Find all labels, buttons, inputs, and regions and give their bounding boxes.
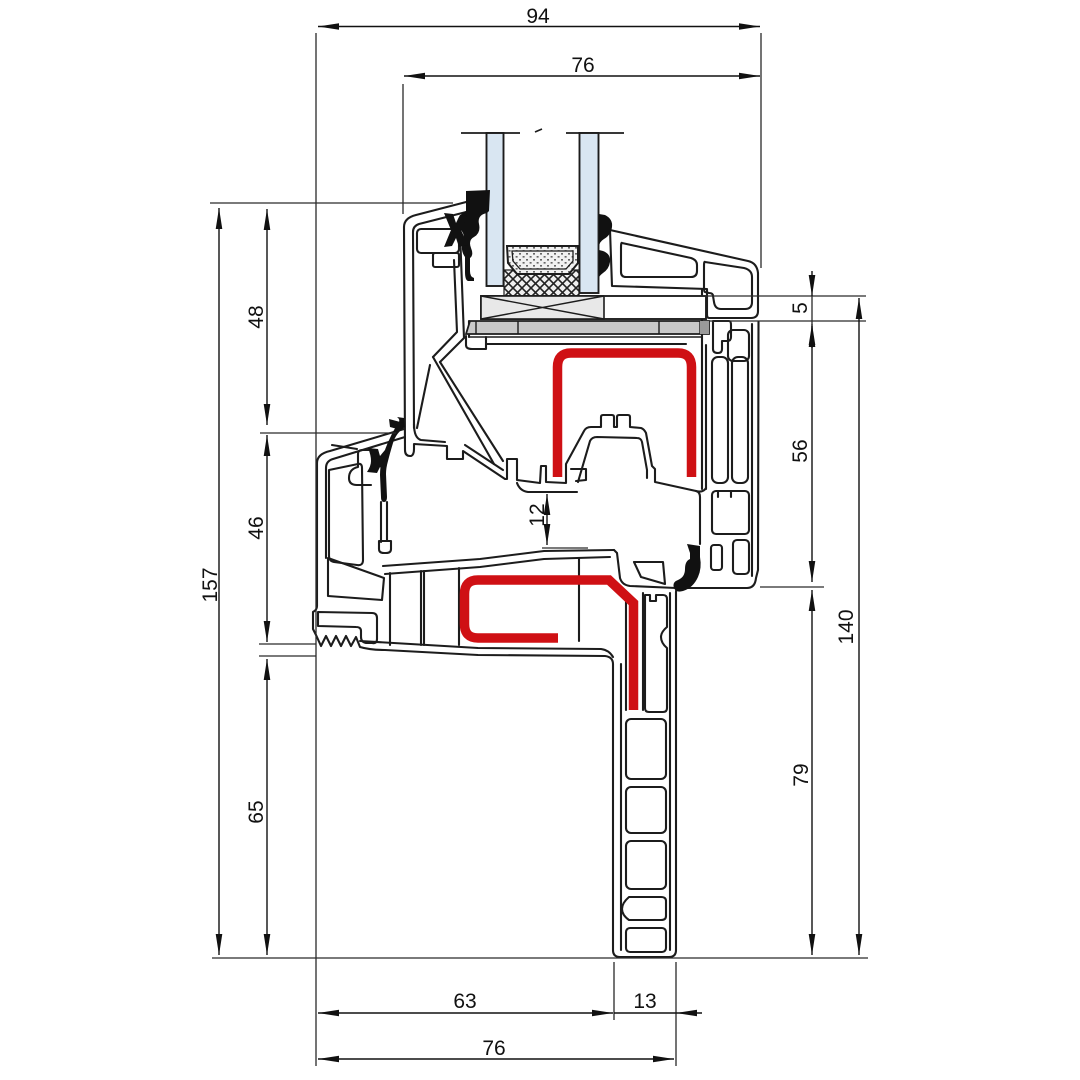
svg-text:94: 94 bbox=[526, 5, 550, 28]
svg-text:65: 65 bbox=[245, 800, 268, 823]
svg-text:63: 63 bbox=[453, 990, 476, 1013]
svg-text:13: 13 bbox=[633, 990, 656, 1013]
svg-text:157: 157 bbox=[199, 567, 222, 602]
svg-text:46: 46 bbox=[245, 516, 268, 539]
svg-text:12: 12 bbox=[526, 503, 549, 526]
svg-text:79: 79 bbox=[790, 763, 813, 786]
svg-text:5: 5 bbox=[789, 302, 812, 314]
svg-text:76: 76 bbox=[571, 54, 594, 77]
svg-text:56: 56 bbox=[789, 439, 812, 462]
svg-text:48: 48 bbox=[245, 305, 268, 328]
svg-text:76: 76 bbox=[482, 1037, 505, 1060]
svg-text:140: 140 bbox=[835, 609, 858, 644]
